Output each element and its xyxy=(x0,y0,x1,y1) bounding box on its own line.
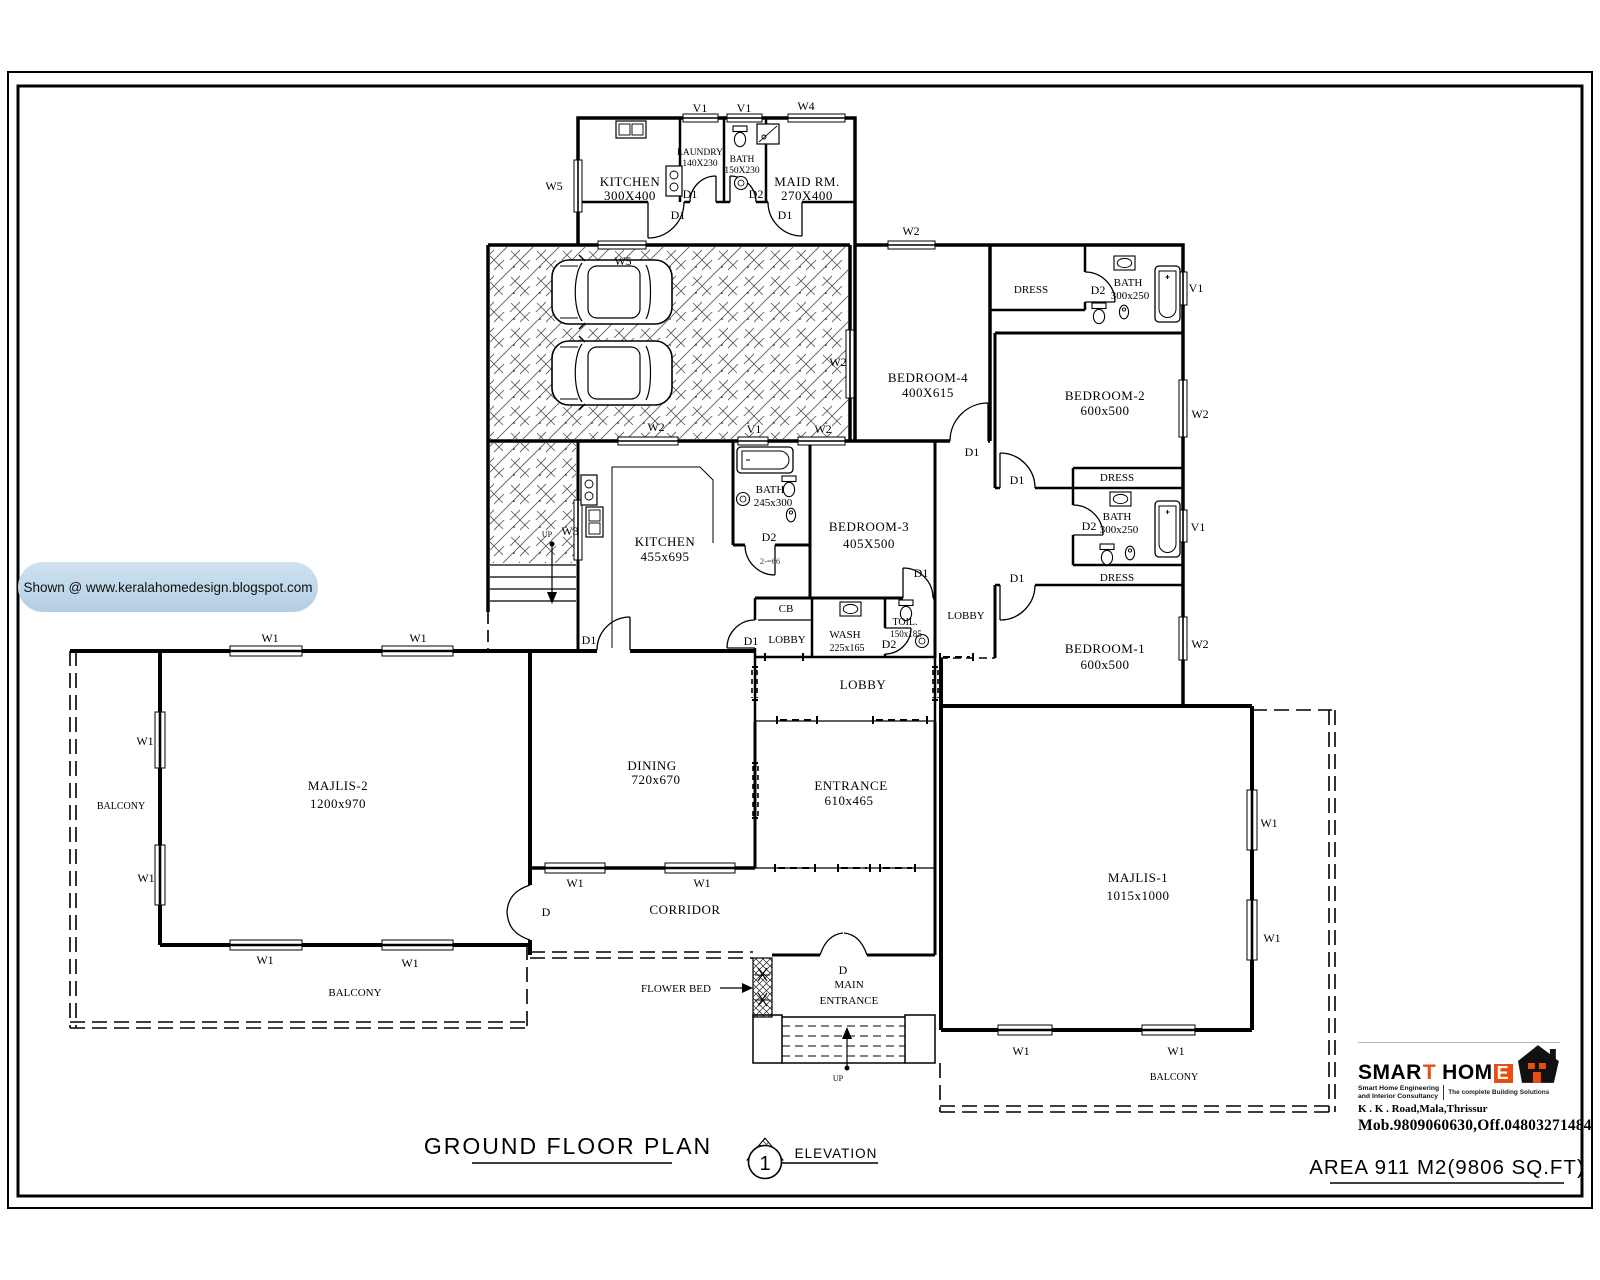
tag-w1: W1 xyxy=(566,876,583,890)
tag-w2: W2 xyxy=(902,224,919,238)
room-dims-wash: 225x165 xyxy=(830,643,865,654)
plan-note: 2-=66 xyxy=(760,556,780,566)
watermark-text: Shown @ www.keralahomedesign.blogspot.co… xyxy=(23,580,312,595)
room-label-bedroom1: BEDROOM-1 xyxy=(1065,641,1145,656)
room-dims-dining: 720x670 xyxy=(632,772,681,787)
room-label-lobby-centre: LOBBY xyxy=(840,677,887,692)
room-dims-bedroom4: 400X615 xyxy=(902,385,954,400)
toilet-icon xyxy=(1092,303,1106,324)
room-label-corridor: CORRIDOR xyxy=(649,902,720,917)
walkway-paving xyxy=(490,443,576,563)
car-icon xyxy=(552,336,672,410)
logo-taglines: Smart Home Engineering and Interior Cons… xyxy=(1358,1085,1560,1100)
stove-icon xyxy=(581,475,597,505)
kitchen-sink-icon xyxy=(616,121,646,138)
tag-w2: W2 xyxy=(1191,407,1208,421)
tag-d1: D1 xyxy=(1010,571,1025,585)
room-label-kitchen: KITCHEN xyxy=(635,534,696,549)
room-label-bath-inner: BATH xyxy=(756,484,785,496)
room-label-dining: DINING xyxy=(627,758,676,773)
room-label-bath-top: BATH xyxy=(730,155,755,165)
tag-w1: W1 xyxy=(401,956,418,970)
room-label-dress-low: DRESS xyxy=(1100,572,1134,584)
room-dims-bedroom1: 600x500 xyxy=(1081,657,1130,672)
room-label-majlis2: MAJLIS-2 xyxy=(308,778,368,793)
bidet-icon xyxy=(1119,305,1128,319)
tag-w1: W1 xyxy=(1263,931,1280,945)
kitchen-sink-icon xyxy=(586,507,603,537)
tag-d2: D2 xyxy=(749,187,764,201)
logo-phone: Mob.9809060630,Off.04803271484 xyxy=(1358,1117,1560,1135)
toilet-icon xyxy=(1100,544,1114,565)
bathtub-icon xyxy=(737,447,793,473)
tag-w2: W2 xyxy=(829,355,846,369)
tag-up: UP xyxy=(542,530,553,539)
room-label-laundry: LAUNDRY xyxy=(677,148,723,158)
sink-icon xyxy=(737,493,750,506)
room-label-bedroom2: BEDROOM-2 xyxy=(1065,388,1145,403)
tag-w1: W1 xyxy=(1012,1044,1029,1058)
sink-icon xyxy=(1114,256,1135,270)
tag-d1: D1 xyxy=(582,633,597,647)
tag-v1: V1 xyxy=(693,101,708,115)
room-dims-bath-inner: 245x300 xyxy=(754,497,793,509)
tag-d1: D1 xyxy=(778,208,793,222)
room-dims-majlis1: 1015x1000 xyxy=(1107,888,1170,903)
tag-w1: W1 xyxy=(256,953,273,967)
area-label: AREA 911 M2(9806 SQ.FT) xyxy=(1309,1156,1585,1179)
room-label-cb: CB xyxy=(779,603,794,615)
logo-tagline-right: The complete Building Solutions xyxy=(1444,1085,1549,1100)
tag-w1: W1 xyxy=(409,631,426,645)
car-icon xyxy=(552,255,672,329)
label-main-entrance-1: MAIN xyxy=(834,979,863,991)
logo-brand-e: E xyxy=(1494,1064,1514,1083)
logo-brand-part2: HOM xyxy=(1442,1063,1493,1083)
tag-d2: D2 xyxy=(882,637,897,651)
tag-up: UP xyxy=(833,1074,844,1083)
room-label-bath-right-top: BATH xyxy=(1114,277,1143,289)
tag-v1: V1 xyxy=(747,422,762,436)
tag-v1: V1 xyxy=(737,101,752,115)
tag-d2: D2 xyxy=(762,530,777,544)
label-main-entrance-2: ENTRANCE xyxy=(820,995,879,1007)
elevation-number: 1 xyxy=(759,1153,770,1175)
room-label-dress-top: DRESS xyxy=(1014,284,1048,296)
stove-icon xyxy=(666,166,682,196)
room-label-bedroom3: BEDROOM-3 xyxy=(829,519,909,534)
bidet-icon xyxy=(1125,546,1134,560)
room-dims-entrance: 610x465 xyxy=(825,793,874,808)
logo-brand-t: T xyxy=(1423,1063,1436,1083)
tag-d2: D2 xyxy=(1082,519,1097,533)
tag-d1: D1 xyxy=(744,634,759,648)
room-label-balcony-left: BALCONY xyxy=(97,801,145,812)
tag-w5: W5 xyxy=(614,254,631,268)
tag-w1: W1 xyxy=(693,876,710,890)
room-label-toilet: TOIL. xyxy=(892,617,917,628)
tag-d1: D1 xyxy=(965,445,980,459)
tag-w1: W1 xyxy=(1167,1044,1184,1058)
tag-d1: D1 xyxy=(1010,473,1025,487)
room-label-balcony-right: BALCONY xyxy=(1150,1072,1198,1083)
room-dims-laundry: 140X230 xyxy=(682,159,718,169)
room-dims-bath-right-top: 300x250 xyxy=(1111,290,1150,302)
tag-d1: D1 xyxy=(914,566,929,580)
tag-w2: W2 xyxy=(1191,637,1208,651)
toilet-icon xyxy=(733,126,747,147)
logo-tagline-left: Smart Home Engineering and Interior Cons… xyxy=(1358,1085,1444,1100)
room-dims-maid: 270X400 xyxy=(781,188,833,203)
watermark-badge: Shown @ www.keralahomedesign.blogspot.co… xyxy=(18,562,318,612)
floor-plan-page: KITCHEN 300X400 LAUNDRY 140X230 BATH 150… xyxy=(0,0,1600,1280)
tag-d: D xyxy=(542,905,551,919)
tag-d2: D2 xyxy=(1091,283,1106,297)
shower-icon xyxy=(757,124,779,144)
sheet-titles: GROUND FLOOR PLAN 1 ELEVATION AREA 911 M… xyxy=(424,1133,1585,1183)
tag-w1: W1 xyxy=(1260,816,1277,830)
sink-icon xyxy=(735,177,748,190)
tag-w1: W1 xyxy=(136,734,153,748)
tag-w1: W1 xyxy=(137,871,154,885)
tag-w5: W5 xyxy=(545,179,562,193)
bathtub-icon xyxy=(1155,501,1180,557)
logo-address: K . K . Road,Mala,Thrissur xyxy=(1358,1103,1560,1115)
tag-d: D xyxy=(839,963,848,977)
room-dims-majlis2: 1200x970 xyxy=(310,796,366,811)
tag-w1: W1 xyxy=(261,631,278,645)
room-label-balcony-bottom: BALCONY xyxy=(328,987,381,999)
room-label-maid: MAID RM. xyxy=(774,174,839,189)
flower-bed-area xyxy=(753,958,772,1017)
room-label-wash: WASH xyxy=(829,629,860,641)
tag-v1: V1 xyxy=(1189,281,1204,295)
logo-brand-part1: SMAR xyxy=(1358,1063,1422,1083)
tag-d1: D1 xyxy=(671,208,686,222)
bathtub-icon xyxy=(1155,266,1180,322)
sink-icon xyxy=(840,602,861,616)
tag-v1: V1 xyxy=(1191,520,1206,534)
tag-w2: W2 xyxy=(814,422,831,436)
plan-title: GROUND FLOOR PLAN xyxy=(424,1133,712,1159)
elevation-label: ELEVATION xyxy=(795,1146,878,1161)
room-label-kitchen-top: KITCHEN xyxy=(600,174,661,189)
bidet-icon xyxy=(786,508,795,522)
room-dims-kitchen: 455x695 xyxy=(641,549,690,564)
sink-icon xyxy=(1110,492,1131,506)
tag-w4: W4 xyxy=(797,99,814,113)
room-label-lobby-right: LOBBY xyxy=(947,610,984,622)
room-label-majlis1: MAJLIS-1 xyxy=(1108,870,1168,885)
logo-brand: SMARTHOME xyxy=(1358,1049,1560,1083)
room-label-bath-right-mid: BATH xyxy=(1103,511,1132,523)
smart-home-logo: SMARTHOME Smart Home Engineering and Int… xyxy=(1358,1042,1560,1135)
room-dims-bedroom2: 600x500 xyxy=(1081,403,1130,418)
balcony-boundaries xyxy=(70,612,1335,1112)
tag-w3: W3 xyxy=(561,524,578,538)
room-dims-kitchen-top: 300X400 xyxy=(604,188,656,203)
smart-home-logo-house-icon xyxy=(1516,1043,1560,1083)
room-dims-bath-right-mid: 300x250 xyxy=(1100,524,1139,536)
logo-tagline-left-2: and Interior Consultancy xyxy=(1358,1093,1439,1101)
room-label-entrance: ENTRANCE xyxy=(814,778,887,793)
label-flower-bed: FLOWER BED xyxy=(641,983,711,995)
room-label-dress-mid: DRESS xyxy=(1100,472,1134,484)
room-label-bedroom4: BEDROOM-4 xyxy=(888,370,968,385)
tag-w2: W2 xyxy=(647,420,664,434)
logo-tagline-left-1: Smart Home Engineering xyxy=(1358,1085,1439,1093)
room-label-lobby-strip: LOBBY xyxy=(768,634,805,646)
tag-d1: D1 xyxy=(683,187,698,201)
room-dims-bath-top: 150X230 xyxy=(724,166,760,176)
room-dims-bedroom3: 405X500 xyxy=(843,536,895,551)
